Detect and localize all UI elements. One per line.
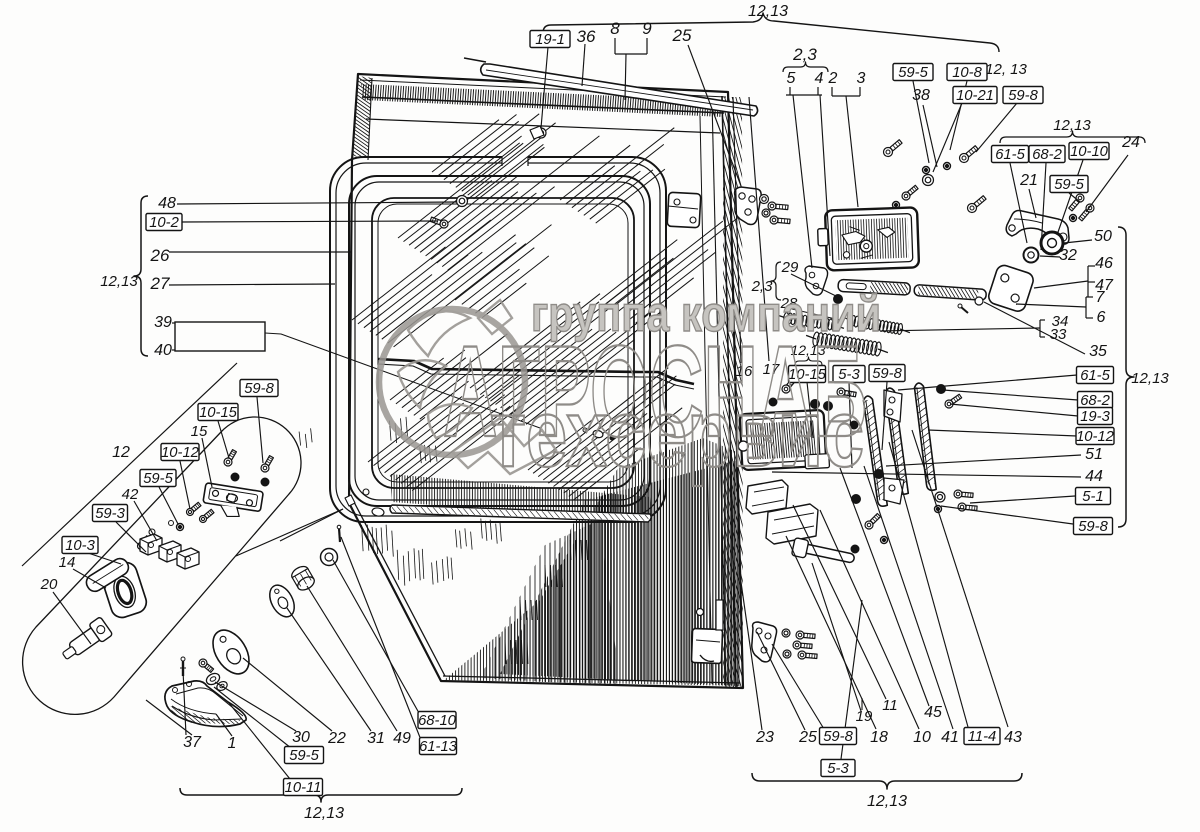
svg-text:44: 44	[1085, 468, 1103, 485]
svg-text:19-1: 19-1	[535, 32, 565, 48]
svg-text:59-3: 59-3	[95, 506, 125, 522]
svg-text:12,13: 12,13	[867, 793, 907, 810]
svg-text:10-3: 10-3	[65, 538, 95, 554]
svg-text:45: 45	[924, 704, 942, 721]
svg-text:61-5: 61-5	[1080, 368, 1110, 384]
svg-text:11: 11	[882, 697, 898, 714]
svg-text:36: 36	[577, 27, 596, 46]
svg-text:15: 15	[191, 423, 208, 440]
svg-text:1: 1	[228, 735, 237, 752]
svg-text:8: 8	[610, 19, 620, 38]
svg-text:41: 41	[941, 729, 959, 746]
svg-text:10: 10	[913, 729, 931, 746]
svg-text:59-8: 59-8	[1078, 519, 1108, 535]
svg-text:42: 42	[122, 486, 139, 503]
svg-text:32: 32	[1059, 247, 1077, 264]
svg-text:10-12: 10-12	[1076, 429, 1115, 445]
svg-text:10-15: 10-15	[199, 405, 238, 421]
svg-text:50: 50	[1094, 228, 1112, 245]
svg-text:12, 13: 12, 13	[985, 61, 1027, 78]
svg-text:59-8: 59-8	[872, 366, 902, 382]
svg-text:43: 43	[1004, 729, 1022, 746]
svg-text:6: 6	[1097, 309, 1106, 326]
svg-text:59-5: 59-5	[898, 65, 928, 81]
svg-text:12,13: 12,13	[1131, 370, 1169, 387]
svg-text:5-1: 5-1	[1082, 489, 1103, 505]
svg-text:23: 23	[755, 729, 774, 746]
svg-text:35: 35	[1089, 343, 1107, 360]
svg-text:10-21: 10-21	[956, 88, 994, 104]
svg-text:18: 18	[870, 729, 888, 746]
svg-text:20: 20	[40, 576, 58, 593]
svg-text:68-10: 68-10	[418, 713, 457, 729]
svg-text:10-10: 10-10	[1070, 144, 1109, 160]
svg-text:11-4: 11-4	[968, 729, 997, 745]
svg-text:10-8: 10-8	[952, 65, 982, 81]
svg-text:39: 39	[154, 314, 172, 331]
svg-text:5-3: 5-3	[827, 761, 849, 777]
svg-text:19: 19	[856, 708, 873, 725]
svg-text:59-8: 59-8	[1008, 88, 1038, 104]
svg-text:59-5: 59-5	[1054, 177, 1084, 193]
svg-text:2: 2	[828, 70, 838, 87]
svg-text:22: 22	[327, 730, 346, 747]
svg-text:30: 30	[292, 729, 310, 746]
svg-text:61-13: 61-13	[419, 739, 458, 755]
svg-text:19-3: 19-3	[1080, 409, 1110, 425]
svg-text:59-5: 59-5	[289, 748, 319, 764]
svg-text:51: 51	[1085, 446, 1103, 463]
svg-text:3: 3	[857, 70, 866, 87]
svg-text:33: 33	[1050, 326, 1067, 343]
svg-text:24: 24	[1121, 134, 1140, 151]
svg-text:4: 4	[815, 70, 824, 87]
svg-text:12,13: 12,13	[748, 3, 788, 20]
svg-text:12: 12	[112, 444, 130, 461]
svg-text:21: 21	[1019, 172, 1038, 189]
svg-text:10-2: 10-2	[149, 215, 179, 231]
svg-text:68-2: 68-2	[1032, 147, 1062, 163]
svg-text:7: 7	[1096, 289, 1106, 306]
svg-text:12,13: 12,13	[304, 805, 344, 822]
svg-text:9: 9	[642, 19, 652, 38]
svg-text:59-5: 59-5	[143, 471, 173, 487]
svg-text:49: 49	[393, 730, 411, 747]
svg-text:12,13: 12,13	[1053, 117, 1091, 134]
svg-text:2,3: 2,3	[792, 45, 817, 64]
svg-text:37: 37	[183, 734, 202, 751]
svg-text:техсервис: техсервис	[490, 380, 864, 487]
svg-text:27: 27	[150, 274, 170, 293]
svg-text:31: 31	[367, 730, 385, 747]
svg-text:5: 5	[787, 70, 796, 87]
svg-text:12,13: 12,13	[100, 273, 138, 290]
svg-text:10-11: 10-11	[285, 780, 322, 796]
svg-text:10-12: 10-12	[161, 445, 200, 461]
svg-text:48: 48	[158, 195, 176, 212]
svg-text:46: 46	[1095, 255, 1113, 272]
svg-text:61-5: 61-5	[995, 147, 1025, 163]
svg-text:38: 38	[912, 87, 930, 104]
svg-text:59-8: 59-8	[244, 381, 274, 397]
svg-text:40: 40	[154, 342, 172, 359]
svg-text:59-8: 59-8	[823, 729, 853, 745]
svg-text:29: 29	[781, 259, 799, 276]
svg-text:25: 25	[798, 729, 817, 746]
svg-text:26: 26	[150, 246, 170, 265]
svg-text:25: 25	[672, 26, 692, 45]
svg-text:14: 14	[59, 554, 76, 571]
